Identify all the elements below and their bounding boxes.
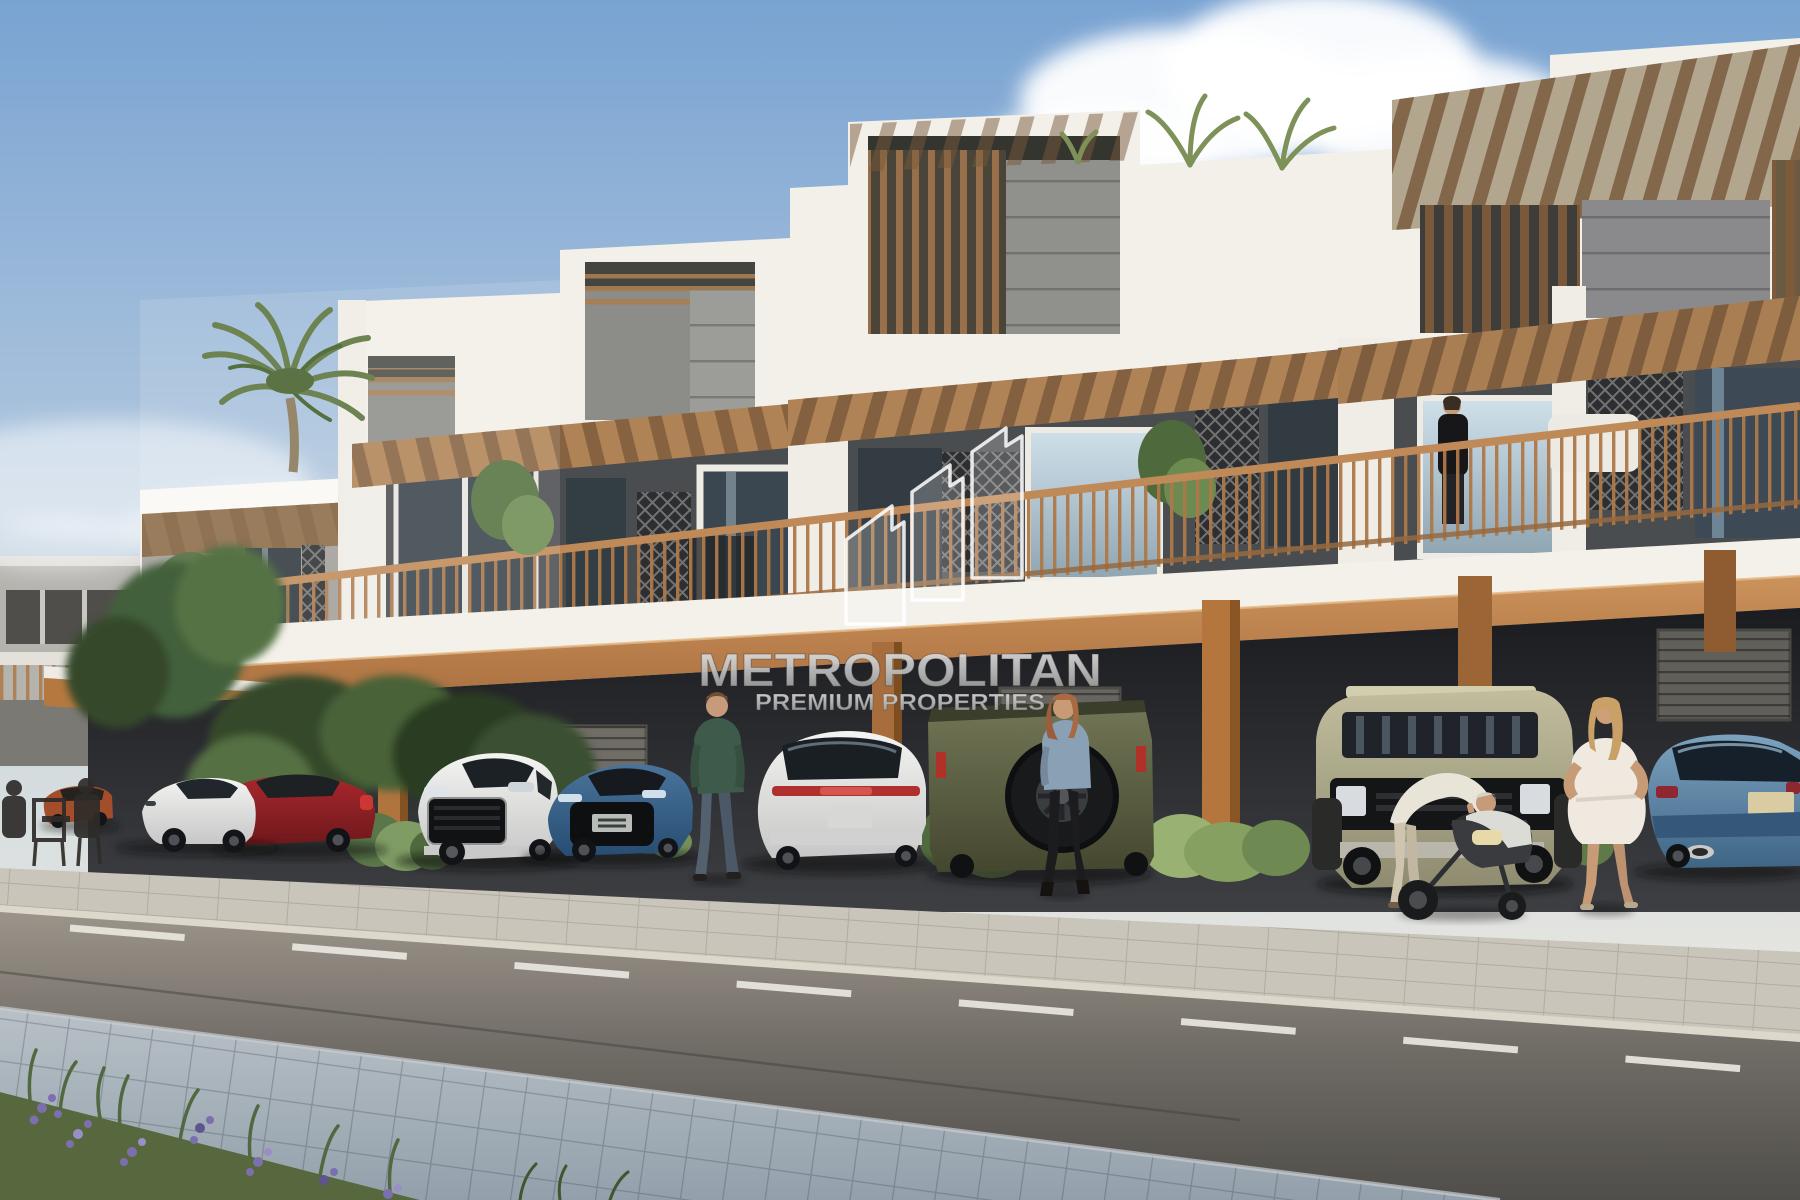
bush (1142, 814, 1310, 882)
vehicle-olive-suv-rear (928, 700, 1154, 885)
scene-svg: METROPOLITAN PREMIUM PROPERTIES (0, 0, 1800, 1200)
rooftop-terrace-module4 (850, 112, 1138, 334)
watermark-subtitle: PREMIUM PROPERTIES (755, 689, 1045, 715)
render-image: METROPOLITAN PREMIUM PROPERTIES (0, 0, 1800, 1200)
rooftop-terrace-module3 (585, 262, 755, 420)
